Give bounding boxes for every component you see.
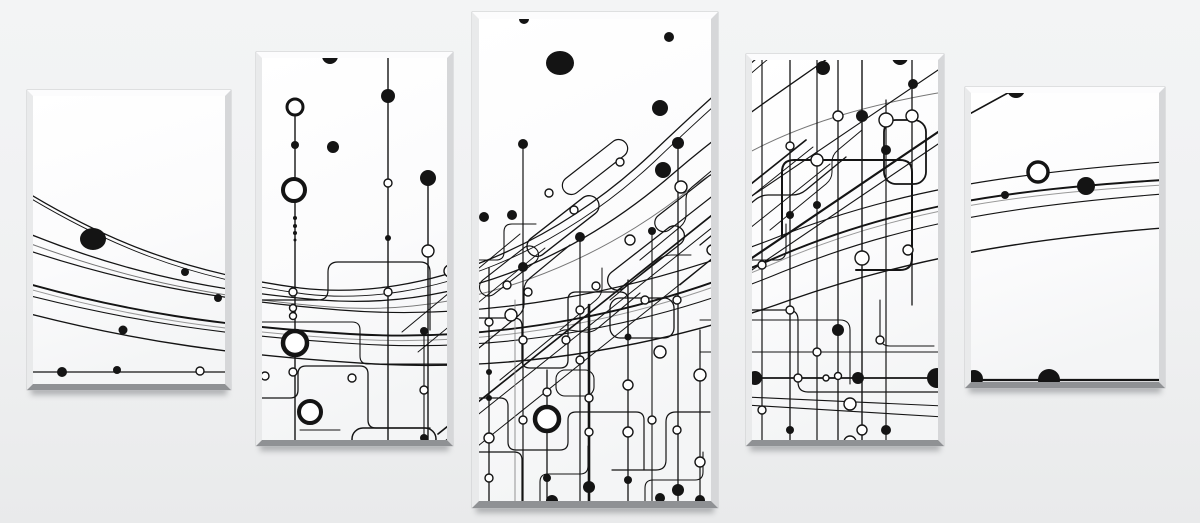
canvas-panel-5 [965, 87, 1165, 393]
canvas-panel-1 [27, 90, 231, 395]
panel-bevel-left [746, 54, 752, 446]
canvas-print-scene [0, 0, 1200, 523]
panel-bevel-top [472, 12, 718, 19]
panel-bevel-right [447, 52, 453, 446]
canvas-panel-3 [472, 12, 718, 513]
panel-group [27, 12, 1165, 513]
panel-bevel-right [711, 12, 718, 508]
panel-bevel-right [225, 90, 231, 390]
panel-bevel-top [256, 52, 453, 58]
panel-bevel-left [965, 87, 971, 388]
panel-bevel-left [27, 90, 33, 390]
panel-bevel-bottom [256, 440, 453, 446]
panel-bevel-bottom [746, 440, 944, 446]
panel-bevel-left [256, 52, 262, 446]
panel-bevel-top [965, 87, 1165, 93]
panel-bevel-bottom [27, 384, 231, 390]
panel-bevel-right [938, 54, 944, 446]
panel-bevel-bottom [472, 501, 718, 508]
panel-bevel-top [746, 54, 944, 60]
panel-bevel-bottom [965, 382, 1165, 388]
panel-bevel-right [1159, 87, 1165, 388]
panel-bevel-left [472, 12, 479, 508]
panel-face [33, 96, 225, 384]
product-image [0, 0, 1200, 523]
panel-bevel-top [27, 90, 231, 96]
panel-face [262, 58, 447, 440]
